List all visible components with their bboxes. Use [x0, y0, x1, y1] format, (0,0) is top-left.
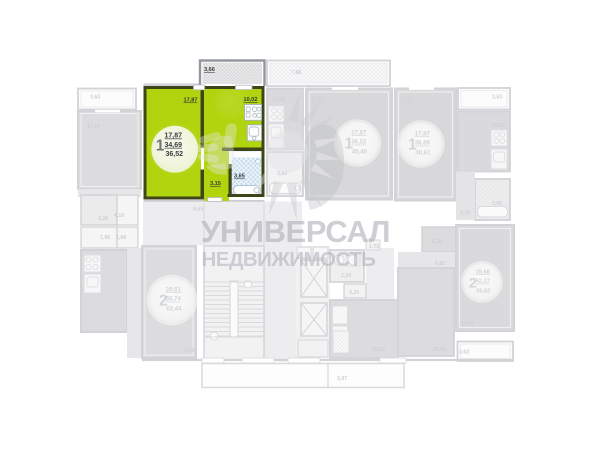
svg-text:6,20: 6,20 — [432, 239, 442, 245]
svg-text:52,27: 52,27 — [476, 279, 490, 285]
svg-text:10,01: 10,01 — [433, 347, 446, 353]
svg-text:55,82: 55,82 — [476, 288, 490, 294]
svg-text:10,02: 10,02 — [244, 97, 258, 103]
svg-text:10,02: 10,02 — [372, 347, 385, 353]
svg-text:17,87: 17,87 — [400, 97, 413, 103]
svg-text:3,25: 3,25 — [98, 216, 108, 222]
svg-text:29,61: 29,61 — [166, 287, 182, 293]
svg-text:17,87: 17,87 — [184, 98, 198, 104]
svg-text:3,63: 3,63 — [459, 350, 469, 356]
svg-text:3,63: 3,63 — [492, 95, 502, 101]
svg-text:62,44: 62,44 — [166, 306, 182, 312]
svg-text:7,88: 7,88 — [291, 70, 301, 76]
svg-text:1: 1 — [156, 138, 165, 155]
svg-text:3,66: 3,66 — [204, 67, 215, 73]
svg-text:10,02: 10,02 — [272, 97, 285, 103]
svg-text:3,65: 3,65 — [234, 174, 245, 180]
svg-text:3,63: 3,63 — [90, 95, 100, 101]
svg-text:3,97: 3,97 — [337, 376, 347, 382]
svg-text:6,92: 6,92 — [435, 261, 445, 267]
svg-text:17,87: 17,87 — [311, 97, 324, 103]
svg-text:8,65: 8,65 — [193, 207, 203, 213]
svg-text:3,65: 3,65 — [492, 201, 502, 207]
svg-text:28,68: 28,68 — [476, 269, 490, 275]
svg-text:3,15: 3,15 — [210, 181, 221, 187]
svg-text:40,46: 40,46 — [352, 149, 368, 155]
svg-text:2,20: 2,20 — [341, 273, 351, 279]
svg-text:17,87: 17,87 — [165, 133, 183, 140]
svg-text:УНИВЕРСАЛ: УНИВЕРСАЛ — [201, 214, 390, 249]
svg-text:38,89: 38,89 — [415, 141, 431, 147]
svg-text:17,87: 17,87 — [461, 321, 474, 327]
svg-text:36,52: 36,52 — [351, 140, 367, 146]
svg-text:НЕДВИЖИМОСТЬ: НЕДВИЖИМОСТЬ — [202, 248, 376, 271]
svg-text:10,02: 10,02 — [492, 123, 505, 129]
svg-text:17,87: 17,87 — [184, 348, 197, 354]
svg-text:60,74: 60,74 — [166, 297, 182, 303]
svg-text:1,68: 1,68 — [116, 235, 126, 241]
svg-text:4,16: 4,16 — [114, 213, 124, 219]
svg-text:34,69: 34,69 — [165, 142, 183, 149]
svg-text:17,87: 17,87 — [351, 130, 367, 136]
svg-text:36,52: 36,52 — [166, 151, 184, 158]
svg-text:17,87: 17,87 — [415, 131, 431, 137]
svg-text:40,61: 40,61 — [415, 150, 431, 156]
svg-text:3,25: 3,25 — [349, 290, 359, 296]
svg-text:1,96: 1,96 — [100, 235, 110, 241]
svg-text:3,15: 3,15 — [460, 211, 470, 217]
svg-text:17,74: 17,74 — [87, 124, 100, 130]
